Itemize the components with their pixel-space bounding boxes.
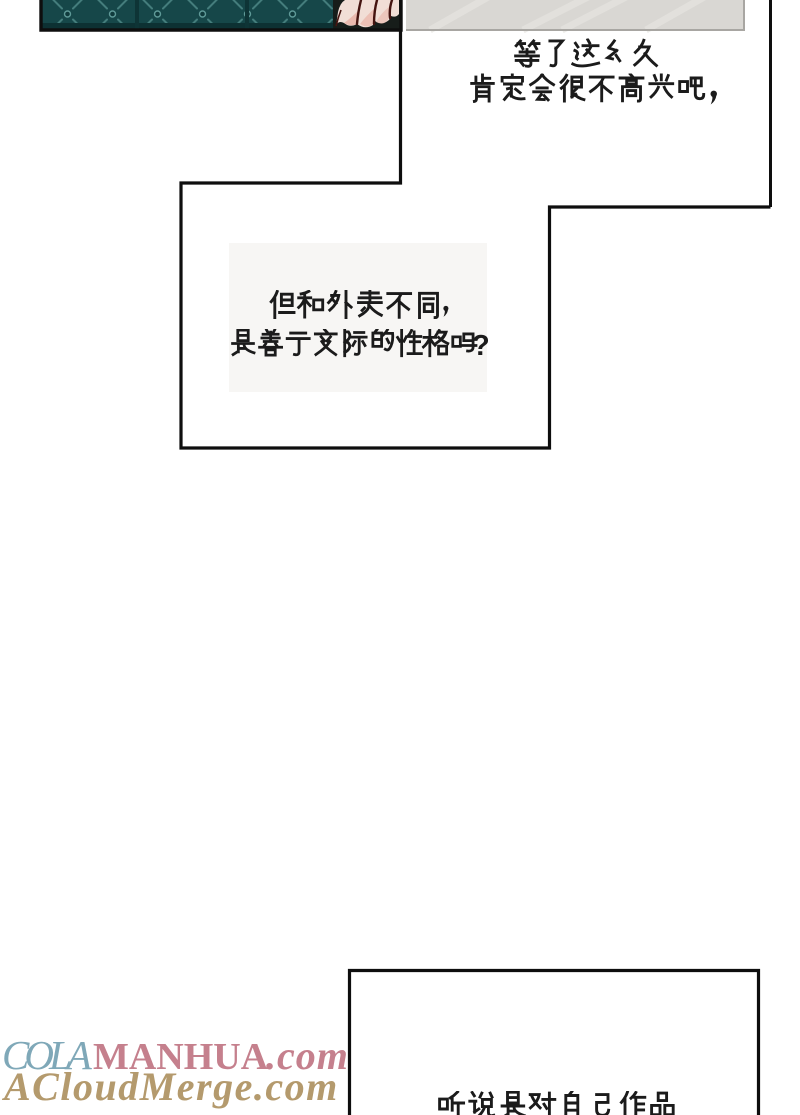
svg-text:?: ? (472, 330, 490, 362)
svg-text:ACloudMerge.com: ACloudMerge.com (1, 1064, 339, 1109)
